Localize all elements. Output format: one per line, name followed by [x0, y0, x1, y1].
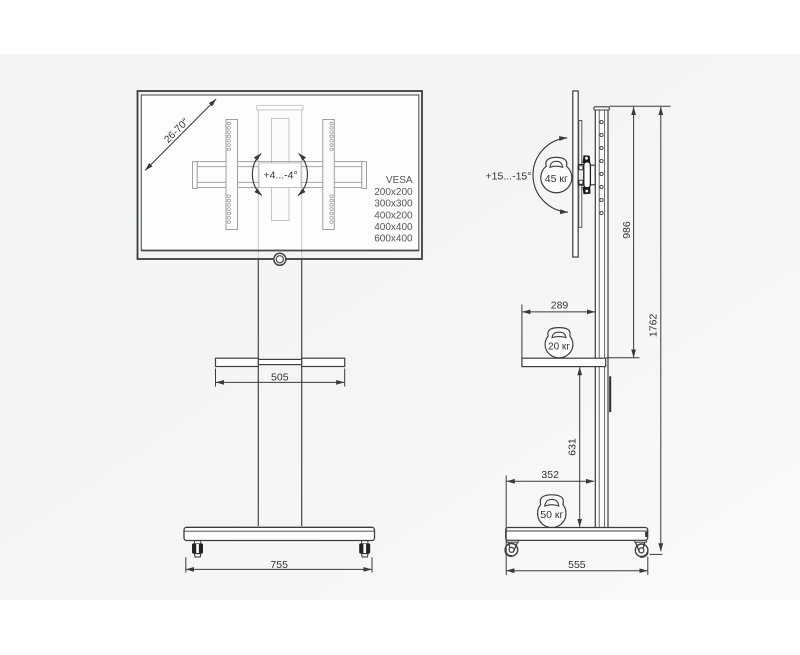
svg-text:1762: 1762 [648, 314, 660, 338]
svg-text:755: 755 [270, 559, 288, 571]
svg-text:300x300: 300x300 [374, 199, 413, 210]
svg-text:289: 289 [551, 300, 569, 312]
svg-text:45 кг: 45 кг [545, 173, 568, 185]
svg-text:986: 986 [621, 221, 633, 239]
svg-text:400x200: 400x200 [374, 210, 413, 221]
svg-text:600x400: 600x400 [374, 234, 413, 245]
svg-text:400x400: 400x400 [374, 222, 413, 233]
svg-text:+15...-15°: +15...-15° [486, 170, 532, 182]
svg-text:352: 352 [541, 469, 559, 481]
svg-text:555: 555 [568, 559, 586, 571]
svg-text:VESA: VESA [386, 175, 413, 186]
svg-text:200x200: 200x200 [374, 187, 413, 198]
svg-text:50 кг: 50 кг [540, 509, 563, 521]
svg-text:631: 631 [566, 438, 578, 456]
svg-text:+4...-4°: +4...-4° [263, 170, 297, 182]
svg-text:505: 505 [271, 372, 289, 384]
svg-text:20 кг: 20 кг [548, 342, 570, 353]
